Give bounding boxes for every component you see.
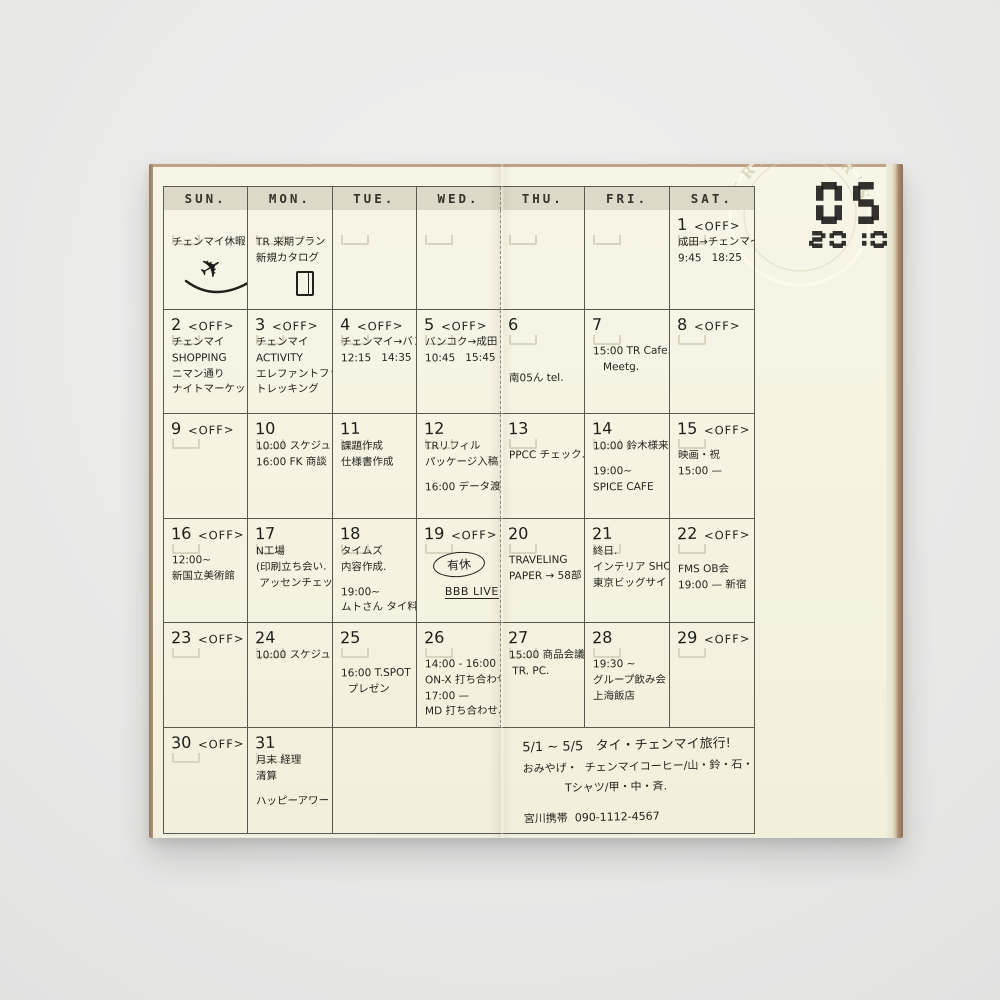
date-number: 20: [508, 524, 529, 544]
calendar-cell: [501, 210, 585, 310]
cell-entry: 仕様書作成: [340, 454, 413, 471]
date-line: 3<OFF>: [255, 315, 331, 334]
calendar-cell: 2614:00 - 16:00ON-X 打ち合わせ17:00 —MD 打ち合わせ…: [417, 623, 501, 728]
calendar-cell: 22<OFF>FMS OB会19:00 — 新宿: [670, 519, 754, 623]
cell-entry: 12:00~: [172, 553, 245, 570]
off-label: <OFF>: [198, 736, 245, 751]
date-number: 27: [508, 628, 529, 648]
date-box-mark: [509, 235, 537, 245]
date-number: 15: [676, 419, 697, 439]
date-number: 11: [339, 419, 360, 439]
date-line: 29<OFF>: [677, 628, 754, 647]
date-box-mark: [172, 648, 200, 658]
date-line: 11: [340, 419, 416, 438]
cell-entry: PPCC チェック.: [509, 448, 582, 465]
day-header: TUE.: [333, 187, 417, 210]
cell-entry: 映画・祝: [678, 448, 752, 465]
date-line: 31: [255, 733, 331, 752]
date-number: 24: [255, 628, 276, 648]
calendar-cell: 2516:00 T.SPOT プレゼン: [333, 623, 417, 728]
date-number: 5: [424, 315, 435, 334]
date-line: 20: [508, 524, 584, 543]
date-number: 6: [508, 315, 519, 334]
calendar-cell: 1<OFF>成田→チェンマイ9:45 18:25: [670, 210, 754, 310]
cell-entry: Meetg.: [593, 359, 666, 376]
date-box-mark: [593, 235, 621, 245]
cell-entry: 新規カタログ: [256, 250, 329, 267]
date-line: 17: [255, 524, 331, 543]
calendar-cell: 15<OFF>映画・祝15:00 —: [670, 414, 754, 519]
cell-entry: 14:00 - 16:00: [425, 657, 498, 674]
off-label: <OFF>: [694, 218, 741, 233]
date-line: [171, 215, 247, 234]
cell-entry: 成田→チェンマイ: [678, 235, 752, 252]
date-line: 9<OFF>: [171, 419, 247, 438]
cell-entry: 10:00 鈴木様来社.: [593, 439, 666, 456]
cell-entry: トレッキング: [256, 382, 329, 399]
calendar-cell: 29<OFF>: [670, 623, 754, 728]
cell-entry: ハッピーアワー: [256, 793, 329, 810]
calendar-cell: 12TRリフィルパッケージ入稿16:00 データ渡し: [417, 414, 501, 519]
cell-entry: タイムズ: [340, 544, 413, 561]
date-line: [508, 215, 584, 234]
cell-entry: MD 打ち合わせ.: [425, 704, 498, 721]
calendar-cell: [333, 210, 417, 310]
calendar-cell: 23<OFF>: [164, 623, 248, 728]
off-label: <OFF>: [704, 527, 751, 542]
cell-entry: [593, 454, 666, 464]
cell-entry: チェンマイ: [256, 335, 329, 352]
date-line: 15<OFF>: [677, 419, 754, 438]
day-header: SUN.: [164, 187, 248, 210]
notes-area: 5/1 ~ 5/5 タイ・チェンマイ旅行!おみやげ・ チェンマイコーヒー/山・鈴…: [333, 728, 754, 833]
off-label: <OFF>: [451, 527, 498, 542]
date-line: 23<OFF>: [171, 628, 247, 647]
date-number: 16: [171, 524, 192, 544]
date-box-mark: [678, 335, 706, 345]
date-line: 13: [508, 419, 584, 438]
date-box-mark: [172, 753, 200, 763]
calendar-cell: [417, 210, 501, 310]
calendar-cell: 30<OFF>: [164, 728, 248, 833]
date-number: 13: [508, 419, 529, 439]
off-label: <OFF>: [441, 318, 488, 333]
cell-entry: (印刷立ち会い.: [256, 559, 329, 576]
calendar-cell: 11課題作成仕様書作成: [333, 414, 417, 519]
date-line: 2<OFF>: [171, 315, 247, 334]
date-number: 30: [171, 733, 192, 753]
cell-entry: ナイトマーケット: [172, 382, 245, 399]
cell-entry: 19:00 — 新宿: [678, 577, 752, 594]
cell-entry: 10:45 15:45: [425, 350, 498, 367]
cell-entry: 南05ん tel.: [509, 371, 582, 388]
calendar-cell: チェンマイ休暇!✈: [164, 210, 248, 310]
calendar-cell: 5<OFF>バンコク→成田10:45 15:45: [417, 310, 501, 414]
cell-entry: 終日.: [593, 544, 666, 561]
cell-entry: グループ飲み会: [593, 672, 666, 689]
off-label: <OFF>: [357, 318, 404, 333]
circled-note: 有休: [432, 550, 486, 579]
off-label: <OFF>: [694, 318, 741, 333]
cell-entry: 19:30 ~: [593, 657, 666, 674]
cell-entry: 19:00~: [340, 584, 413, 601]
calendar-cell: TR 来期プラン新規カタログ: [248, 210, 332, 310]
cell-entry: プレゼン: [340, 681, 413, 698]
cell-entry: SPICE CAFE: [593, 479, 666, 496]
day-header: MON.: [248, 187, 332, 210]
day-header: THU.: [501, 187, 585, 210]
date-box-mark: [341, 235, 369, 245]
off-label: <OFF>: [188, 318, 235, 333]
cell-entry: TR. PC.: [509, 663, 582, 680]
date-line: 10: [255, 419, 331, 438]
date-line: 8<OFF>: [677, 315, 754, 334]
date-line: [255, 215, 331, 234]
cell-entry: 9:45 18:25: [678, 250, 752, 267]
cell-entry: パッケージ入稿: [425, 454, 498, 471]
off-label: <OFF>: [188, 422, 235, 437]
calendar-cell: 1010:00 スケジュール㊞16:00 FK 商談: [248, 414, 332, 519]
cell-entry: 上海飯店: [593, 688, 666, 705]
cell-entry: 清算: [256, 768, 329, 785]
calendar-cell: [585, 210, 669, 310]
cell-entry: 月末 経理: [256, 753, 329, 770]
cell-entry: 新国立美術館: [172, 568, 245, 585]
underlined-note-row: BBB LIVE: [417, 580, 500, 599]
calendar-cell: 20TRAVELINGPAPER → 58部: [501, 519, 585, 623]
date-line: 28: [592, 628, 668, 647]
cell-entry: PAPER → 58部: [509, 568, 582, 585]
day-header: FRI.: [585, 187, 669, 210]
cell-entry: [341, 575, 414, 585]
date-number: 18: [339, 524, 360, 544]
date-line: 22<OFF>: [677, 524, 754, 543]
notes-block: 5/1 ~ 5/5 タイ・チェンマイ旅行!おみやげ・ チェンマイコーヒー/山・鈴…: [522, 732, 754, 830]
cell-entry: 16:00 FK 商談: [256, 454, 329, 471]
cell-entry: アッセンチェック.: [256, 575, 329, 592]
date-line: 12: [424, 419, 500, 438]
date-line: 14: [592, 419, 668, 438]
date-line: 7: [592, 315, 668, 334]
underlined-note: BBB LIVE: [445, 585, 499, 599]
calendar-cell: 9<OFF>: [164, 414, 248, 519]
day-header: WED.: [417, 187, 501, 210]
date-number: 7: [592, 315, 603, 334]
date-line: [424, 215, 500, 234]
off-label: <OFF>: [704, 631, 751, 646]
date-line: 1<OFF>: [677, 215, 754, 234]
calendar-cell: 2715:00 商品会議 TR. PC.: [501, 623, 585, 728]
date-line: 19<OFF>: [424, 524, 500, 543]
date-number: 1: [676, 215, 687, 234]
cell-entry: チェンマイ休暇!: [172, 235, 245, 252]
cell-entry: エレファントファーム: [256, 366, 329, 383]
date-number: 26: [424, 628, 445, 648]
date-number: 22: [676, 524, 697, 544]
notebook: TRAVELER'S SUN.MON.TUE.WED.THU.FRI.SAT. …: [149, 164, 903, 838]
date-number: 25: [339, 628, 360, 648]
cell-entry: FMS OB会: [678, 562, 752, 579]
date-number: 23: [171, 628, 192, 648]
calendar-cell: 3<OFF>チェンマイACTIVITYエレファントファームトレッキング: [248, 310, 332, 414]
calendar-cell: 715:00 TR Cafe. Meetg.: [585, 310, 669, 414]
calendar-cell: 19<OFF>有休BBB LIVE: [417, 519, 501, 623]
date-number: 8: [676, 315, 687, 334]
calendar-cell: 2819:30 ~グループ飲み会上海飯店: [585, 623, 669, 728]
cell-entry: N工場: [256, 544, 329, 561]
calendar-cell: 16<OFF>12:00~新国立美術館: [164, 519, 248, 623]
date-number: 19: [424, 524, 445, 544]
cell-entry: ON-X 打ち合わせ: [425, 672, 498, 689]
date-line: [592, 215, 668, 234]
notebook-edge-right: [886, 164, 903, 838]
date-line: 21: [592, 524, 668, 543]
date-line: 5<OFF>: [424, 315, 500, 334]
date-line: 4<OFF>: [340, 315, 416, 334]
cell-entry: TR 来期プラン: [256, 235, 329, 252]
cell-entry: [256, 784, 329, 794]
cell-entry: 12:15 14:35: [340, 350, 413, 367]
date-stamp: [808, 182, 888, 248]
date-number: 12: [424, 419, 445, 439]
date-line: 24: [255, 628, 331, 647]
date-line: 25: [340, 628, 416, 647]
note-line: 宮川携帯 090-1112-4567: [523, 805, 754, 830]
cell-entry: 10:00 スケジュール㊞: [256, 648, 329, 665]
off-label: <OFF>: [272, 318, 319, 333]
date-box-mark: [425, 235, 453, 245]
cell-entry: TRリフィル: [425, 439, 498, 456]
date-number: 14: [592, 419, 613, 439]
calendar-cell: 6南05ん tel.: [501, 310, 585, 414]
date-number: 4: [339, 315, 350, 334]
cell-entry: 課題作成: [340, 439, 413, 456]
date-line: 16<OFF>: [171, 524, 247, 543]
calendar-cell: 4<OFF>チェンマイ→バンコク12:15 14:35: [333, 310, 417, 414]
cell-entry: 15:00 —: [678, 463, 752, 480]
cell-entry: 10:00 スケジュール㊞: [256, 439, 329, 456]
cell-entry: 16:00 データ渡し: [425, 479, 498, 496]
cell-entry: インテリア SHOW: [593, 559, 666, 576]
date-number: 3: [255, 315, 266, 334]
cell-entry: 16:00 T.SPOT: [340, 666, 413, 683]
calendar-cell: 2<OFF>チェンマイSHOPPINGニマン通りナイトマーケット: [164, 310, 248, 414]
day-header: SAT.: [670, 187, 754, 210]
off-label: <OFF>: [198, 631, 245, 646]
cell-entry: ニマン通り: [172, 366, 245, 383]
cell-entry: バンコク→成田: [425, 335, 498, 352]
cell-entry: 15:00 TR Cafe.: [593, 344, 666, 361]
cell-entry: 内容作成.: [340, 559, 413, 576]
airplane-doodle: ✈: [178, 253, 247, 298]
date-number: 10: [255, 419, 276, 439]
date-box-mark: [172, 439, 200, 449]
date-number: 31: [255, 733, 276, 753]
cell-entry: SHOPPING: [172, 350, 245, 367]
calendar-grid: SUN.MON.TUE.WED.THU.FRI.SAT. チェンマイ休暇!✈ T…: [163, 186, 755, 834]
cell-entry: [425, 470, 498, 480]
calendar-cell: 18タイムズ内容作成.19:00~ムトさん タイ料理: [333, 519, 417, 623]
cell-entry: 19:00~: [593, 463, 666, 480]
cell-entry: チェンマイ: [172, 335, 245, 352]
calendar-cell: 31月末 経理清算ハッピーアワー: [248, 728, 332, 833]
date-number: 28: [592, 628, 613, 648]
month-stamp: [816, 182, 880, 224]
off-label: <OFF>: [704, 422, 751, 437]
calendar-cell: 1410:00 鈴木様来社.19:00~SPICE CAFE: [585, 414, 669, 519]
cell-entry: ムトさん タイ料理: [340, 600, 413, 617]
year-stamp: [809, 231, 888, 248]
cell-entry: 15:00 商品会議: [509, 648, 582, 665]
calendar-cell: 13PPCC チェック.: [501, 414, 585, 519]
date-line: 6: [508, 315, 584, 334]
cell-entry: 東京ビッグサイト: [593, 575, 666, 592]
date-line: 18: [340, 524, 416, 543]
date-line: 26: [424, 628, 500, 647]
notebook-edge-left: [149, 164, 153, 838]
date-number: 2: [171, 315, 182, 334]
date-line: 27: [508, 628, 584, 647]
date-number: 17: [255, 524, 276, 544]
cell-entry: TRAVELING: [509, 553, 582, 570]
calendar-cell: 21終日.インテリア SHOW東京ビッグサイト: [585, 519, 669, 623]
date-number: 9: [171, 419, 182, 438]
date-number: 29: [676, 628, 697, 648]
notebook-doodle-icon: [296, 271, 314, 296]
date-line: 30<OFF>: [171, 733, 247, 752]
cell-entry: 17:00 —: [425, 688, 498, 705]
calendar-cell: 2410:00 スケジュール㊞: [248, 623, 332, 728]
calendar-cell: 17N工場(印刷立ち会い. アッセンチェック.: [248, 519, 332, 623]
cell-entry: チェンマイ→バンコク: [340, 335, 413, 352]
date-box-mark: [678, 648, 706, 658]
date-line: [340, 215, 416, 234]
calendar-cell: 8<OFF>: [670, 310, 754, 414]
date-number: 21: [592, 524, 613, 544]
cell-entry: ACTIVITY: [256, 350, 329, 367]
off-label: <OFF>: [198, 527, 245, 542]
